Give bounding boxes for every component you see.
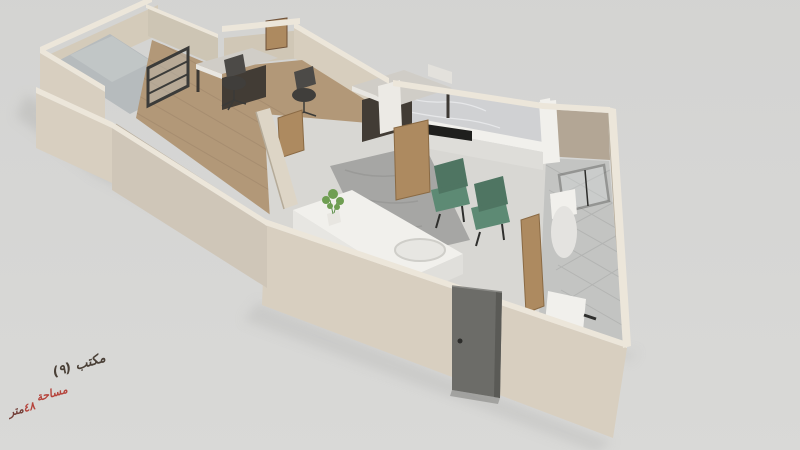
floorplan-3d-scene bbox=[0, 0, 800, 450]
office-cabinet bbox=[378, 80, 402, 134]
basin-oval bbox=[395, 239, 445, 261]
entry-door bbox=[450, 286, 502, 404]
kitchen-door bbox=[394, 120, 430, 200]
door-handle bbox=[458, 339, 463, 344]
floorplan-render: مكتب (٩) مساحة ٤٨متر bbox=[0, 0, 800, 450]
